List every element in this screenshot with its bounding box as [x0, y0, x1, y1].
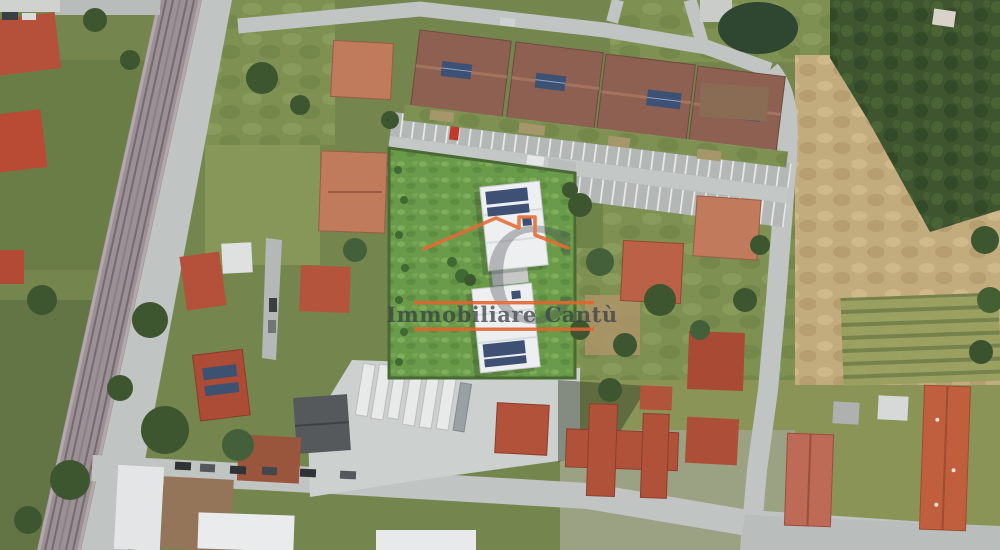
watermark-rule-bottom: [414, 328, 594, 331]
watermark-name: Immobiliare Cantù: [386, 302, 617, 327]
house-salmon-ne: [693, 196, 761, 260]
garden-allotments: [840, 293, 1000, 386]
townhouse-2: [507, 42, 604, 128]
house-roof: [0, 12, 61, 75]
house-with-solar: [193, 349, 251, 421]
red-house-yard: [495, 403, 550, 456]
long-building-pink: [784, 433, 833, 527]
long-building-orange: [920, 385, 971, 531]
townhouse-3: [596, 54, 695, 142]
townhouse-1: [410, 30, 511, 119]
aerial-photo: C Immobiliare Cantù: [0, 0, 1000, 550]
villa-salmon: [331, 40, 394, 99]
